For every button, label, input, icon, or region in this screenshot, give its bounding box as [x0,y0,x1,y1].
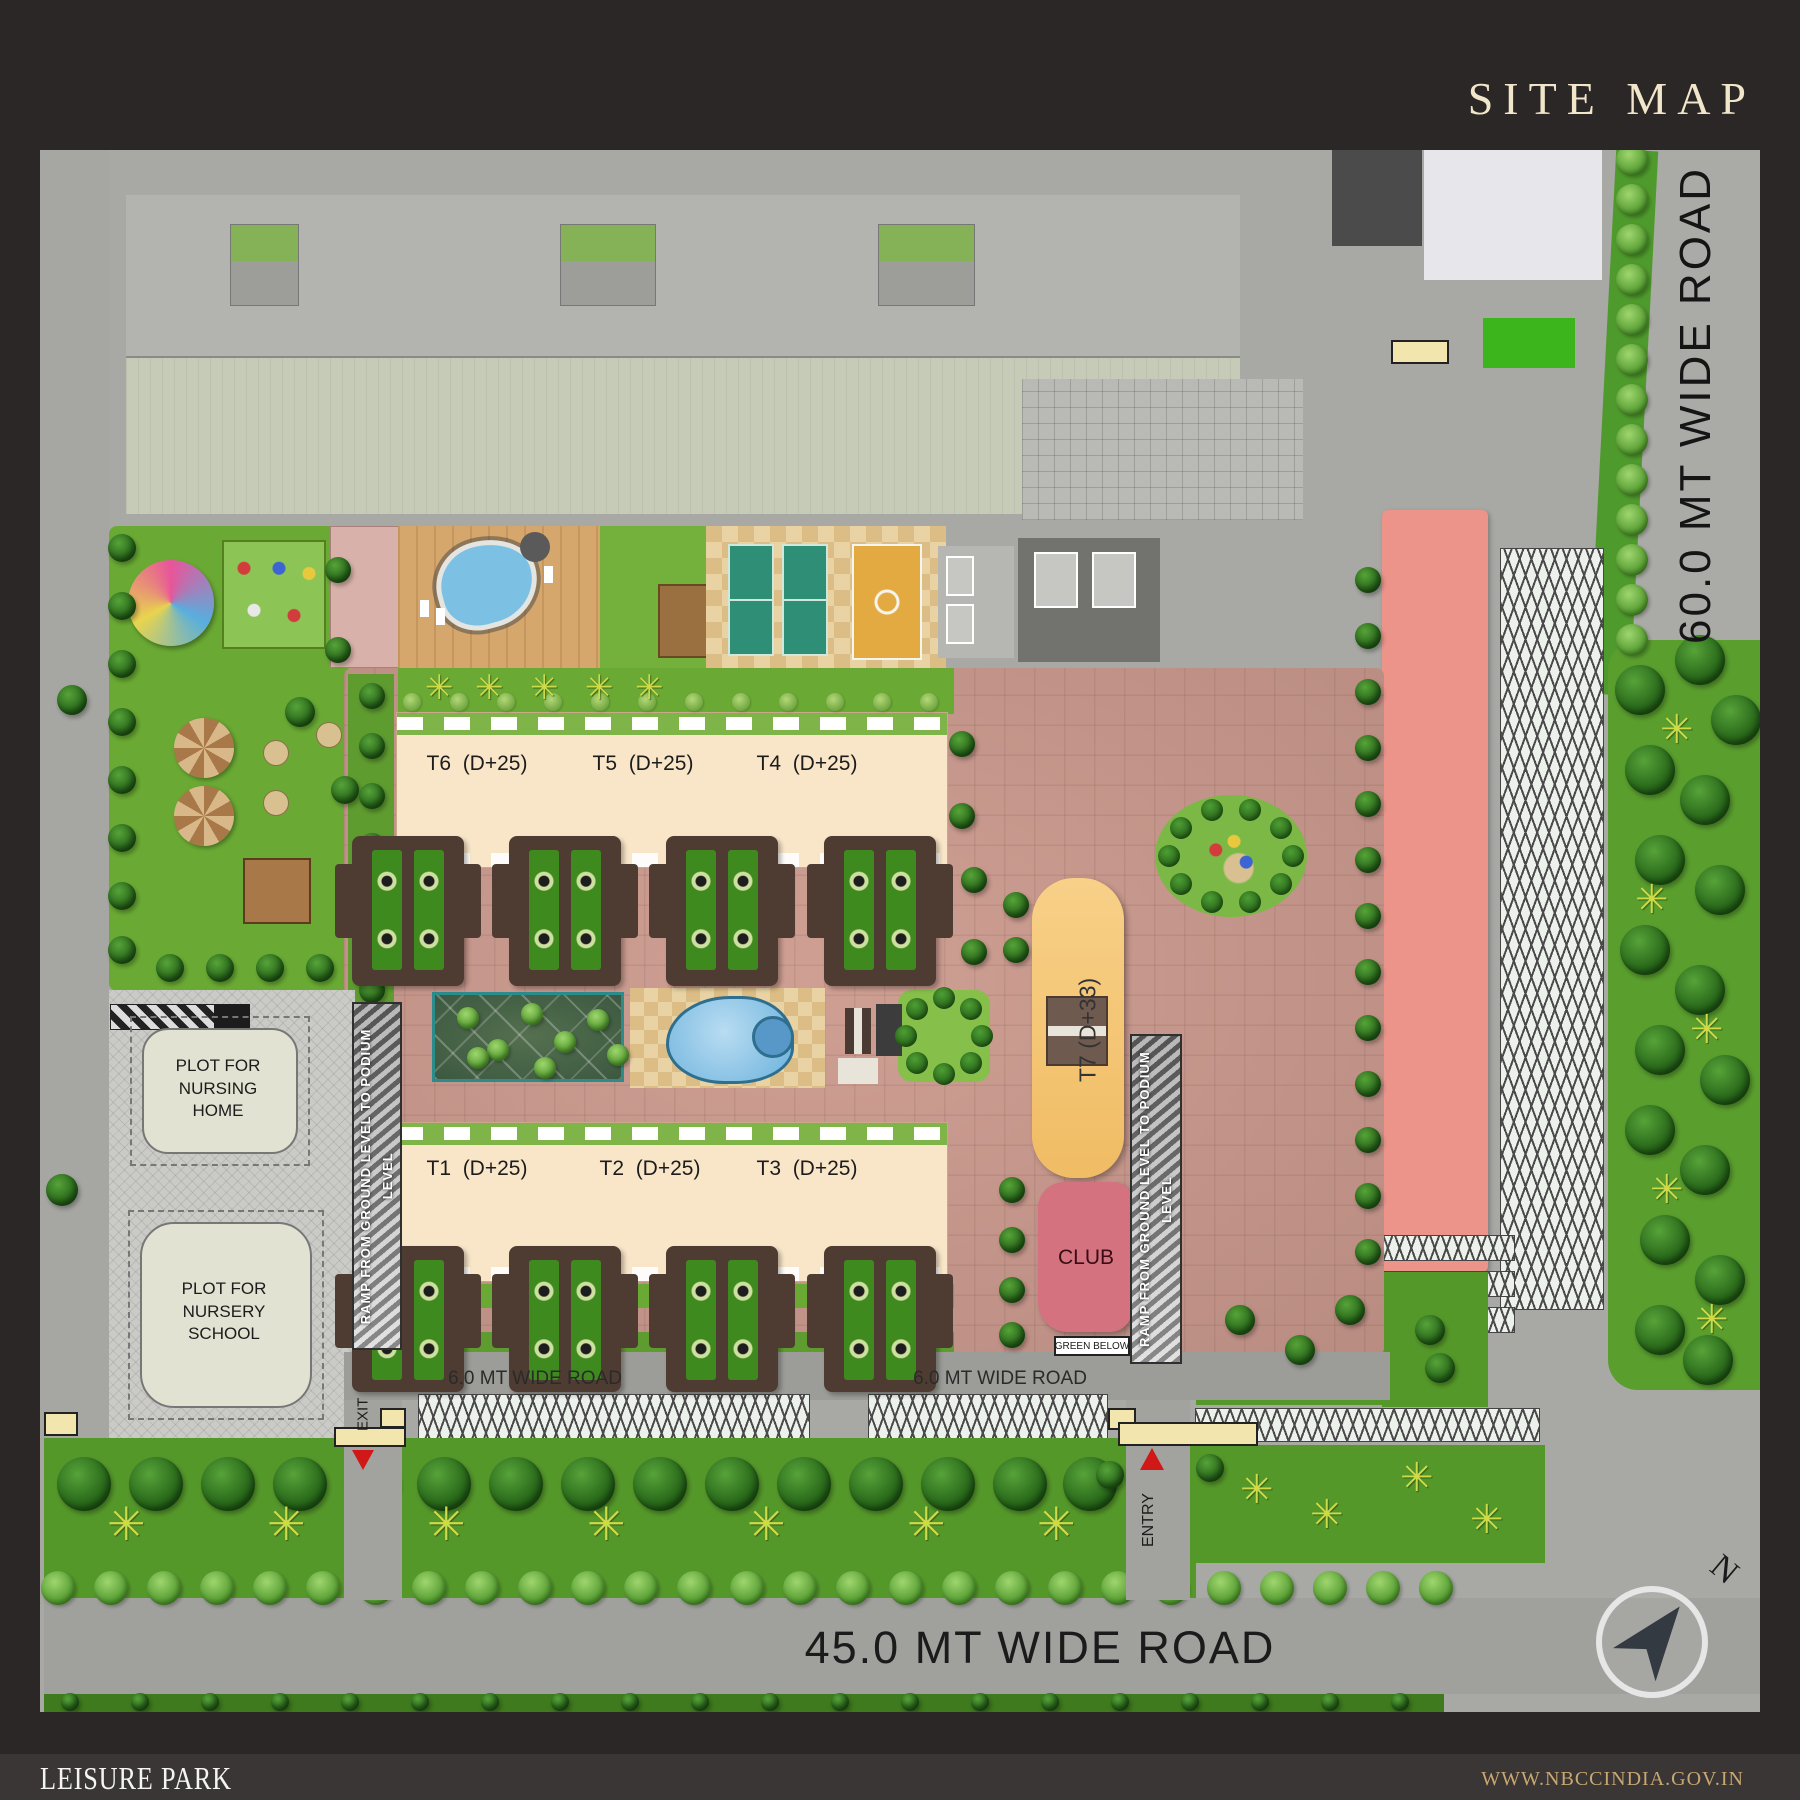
tree-icon [1616,624,1648,656]
tree-icon [1695,865,1745,915]
palm-icon: ✳ [1037,1501,1076,1547]
tree-icon [942,1571,976,1605]
tree-icon [1048,1571,1082,1605]
ramp-west: RAMP FROM GROUND LEVEL TO PODIUM LEVEL [352,1002,402,1350]
tree-icon [108,592,136,620]
page-title: SITE MAP [1468,72,1756,125]
palm-icon: ✳ [1310,1495,1344,1535]
tree-icon [960,1052,982,1074]
palm-icon: ✳ [907,1501,946,1547]
substation-block [1034,552,1078,608]
tree-icon [783,1571,817,1605]
tree-icon [1111,1693,1129,1711]
palm-icon: ✳ [747,1501,786,1547]
tree-icon [949,803,975,829]
tree-icon [285,697,315,727]
palm-icon: ✳ [425,671,454,705]
basketball-court [852,544,922,660]
north-gate-barrier [1391,340,1449,364]
exit-arrow-icon [352,1450,374,1470]
entry-arrow-icon [1140,1448,1164,1470]
palm-icon: ✳ [1635,880,1669,920]
tree-icon [1355,735,1381,761]
existing-building [230,224,299,306]
ramp-west-label: RAMP FROM GROUND LEVEL TO PODIUM LEVEL [355,1011,399,1341]
parking-shed [868,1394,1108,1440]
exit-gate-cabin [380,1408,406,1428]
tree-icon [412,1571,446,1605]
tree-icon [1711,695,1760,745]
table-icon [263,790,289,816]
tree-icon [633,1457,687,1511]
road-6mt-east-label: 6.0 MT WIDE ROAD [905,1368,1095,1390]
footer-project-name: LEISURE PARK [40,1760,232,1797]
tree-icon [46,1174,78,1206]
tree-icon [761,1693,779,1711]
tree-icon [1616,504,1648,536]
park-building [243,858,311,924]
tree-icon [1355,847,1381,873]
palm-icon: ✳ [1690,1010,1724,1050]
tree-icon [1355,791,1381,817]
lounger-icon [420,600,429,617]
tree-icon [1355,1071,1381,1097]
tree-icon [156,954,184,982]
tree-icon [457,1007,479,1029]
ramp-east-label: RAMP FROM GROUND LEVEL TO PODIUM LEVEL [1134,1043,1178,1356]
tree-icon [779,693,797,711]
tree-icon [999,1277,1025,1303]
exit-label: EXIT [348,1385,378,1443]
tree-icon [587,1009,609,1031]
tree-icon [1355,623,1381,649]
palm-icon: ✳ [107,1501,146,1547]
nursing-home-label: PLOT FOR NURSING HOME [158,1040,278,1138]
green-strip-bottom [44,1694,1444,1712]
tree-icon [403,693,421,711]
tree-icon [730,1571,764,1605]
club-label: CLUB [1040,1246,1132,1270]
tree-icon [999,1322,1025,1348]
tree-icon [1207,1571,1241,1605]
tree-icon [1616,184,1648,216]
tree-icon [1313,1571,1347,1605]
utility-block [946,556,974,596]
tree-icon [1616,224,1648,256]
pink-boundary-strip [1382,510,1488,1272]
tree-icon [1285,1335,1315,1365]
table-icon [316,722,342,748]
tree-icon [551,1693,569,1711]
tree-icon [1425,1353,1455,1383]
tree-icon [1158,845,1180,867]
palm-icon: ✳ [585,671,614,705]
tree-icon [518,1571,552,1605]
tree-icon [836,1571,870,1605]
tree-icon [1355,1183,1381,1209]
tree-icon [1170,817,1192,839]
tree-icon [621,1693,639,1711]
tree-icon [933,987,955,1009]
tree-icon [108,824,136,852]
tree-icon [554,1031,576,1053]
tree-icon [57,685,87,715]
tower-label-t7: T7 (D+33) [1062,900,1114,1160]
tree-icon [481,1693,499,1711]
tree-icon [325,557,351,583]
tree-icon [691,1693,709,1711]
tree-icon [1616,424,1648,456]
tree-icon [1355,1127,1381,1153]
tree-icon [1355,903,1381,929]
tree-icon [1251,1693,1269,1711]
tree-icon [147,1571,181,1605]
tree-icon [1366,1571,1400,1605]
tree-icon [489,1457,543,1511]
tree-icon [331,776,359,804]
tree-icon [200,1571,234,1605]
tree-icon [1680,775,1730,825]
tree-icon [1282,845,1304,867]
entry-gate-barrier [1118,1422,1258,1446]
tree-icon [873,693,891,711]
tree-icon [41,1571,75,1605]
tree-icon [1635,1025,1685,1075]
tree-icon [624,1571,658,1605]
palm-icon: ✳ [1650,1170,1684,1210]
palm-icon: ✳ [587,1501,626,1547]
tree-icon [1196,1454,1224,1482]
lounger-icon [436,608,445,625]
slab-roof-garden [397,1123,947,1145]
tower-label-t2: T2 (D+25) [575,1157,725,1181]
ramp-east: RAMP FROM GROUND LEVEL TO PODIUM LEVEL [1130,1034,1182,1364]
tree-icon [1355,1239,1381,1265]
light-structure [1424,150,1602,280]
covered-parking-strip [1500,548,1604,1310]
tree-icon [271,1693,289,1711]
deck-pad [838,1058,878,1084]
tree-icon [1355,959,1381,985]
tree-icon [1615,665,1665,715]
tree-icon [1616,344,1648,376]
tree-icon [1003,892,1029,918]
tree-icon [521,1003,543,1025]
tree-icon [995,1571,1029,1605]
tree-icon [906,1052,928,1074]
pergola [845,1008,871,1054]
tower-label-t3: T3 (D+25) [732,1157,882,1181]
parking-shed [418,1394,810,1440]
tree-icon [1635,1305,1685,1355]
tower-core [666,836,778,986]
nursery-school-label: PLOT FOR NURSERY SCHOOL [158,1252,290,1372]
tree-icon [999,1227,1025,1253]
tree-icon [1201,799,1223,821]
palm-icon: ✳ [267,1501,306,1547]
tree-icon [256,954,284,982]
tree-icon [1096,1461,1124,1489]
structure-grid [1022,379,1303,520]
tree-icon [1239,891,1261,913]
tree-icon [1625,745,1675,795]
tree-icon [999,1177,1025,1203]
tree-icon [1335,1295,1365,1325]
road-45mt-label: 45.0 MT WIDE ROAD [640,1622,1440,1674]
site-map-canvas: 60.0 MT WIDE ROAD T [40,150,1760,1712]
tree-icon [961,867,987,893]
tree-icon [1355,567,1381,593]
palm-icon: ✳ [475,671,504,705]
tree-icon [1640,1215,1690,1265]
road-6mt-west-label: 6.0 MT WIDE ROAD [440,1368,630,1390]
tree-icon [960,998,982,1020]
tower-label-t5: T5 (D+25) [568,752,718,776]
tennis-court [782,544,828,656]
spa-pool [752,1016,794,1058]
tree-icon [108,650,136,678]
tree-icon [1616,464,1648,496]
tree-icon [920,693,938,711]
tree-icon [677,1571,711,1605]
tree-icon [1616,584,1648,616]
tree-icon [1225,1305,1255,1335]
tree-icon [61,1693,79,1711]
tree-icon [1181,1693,1199,1711]
tower-core [666,1246,778,1392]
tree-icon [108,936,136,964]
playground [222,540,326,649]
tennis-court [728,544,774,656]
tree-icon [1419,1571,1453,1605]
tree-icon [306,954,334,982]
hut-icon [174,786,234,846]
entry-label: ENTRY [1134,1474,1164,1566]
tree-icon [1616,304,1648,336]
tree-icon [108,766,136,794]
tree-icon [849,1457,903,1511]
substation-block [1092,552,1136,608]
palm-icon: ✳ [635,671,664,705]
umbrella-icon [520,532,550,562]
road-west [40,150,109,1605]
tree-icon [1201,891,1223,913]
hut-icon [174,718,234,778]
dark-structure [1332,150,1422,246]
tree-icon [1355,1015,1381,1041]
tree-icon [94,1571,128,1605]
tree-icon [961,939,987,965]
tree-icon [1260,1571,1294,1605]
tree-icon [1170,873,1192,895]
tree-icon [1415,1315,1445,1345]
tree-icon [325,637,351,663]
tree-icon [933,1063,955,1085]
tree-icon [971,1693,989,1711]
tree-icon [971,1025,993,1047]
tree-icon [1683,1335,1733,1385]
tree-icon [1616,544,1648,576]
tree-icon [359,733,385,759]
tree-icon [826,693,844,711]
tree-icon [1616,384,1648,416]
tree-icon [359,783,385,809]
tower-label-t1: T1 (D+25) [402,1157,552,1181]
existing-building [560,224,656,306]
palm-icon: ✳ [1695,1300,1729,1340]
tree-icon [57,1457,111,1511]
tree-icon [253,1571,287,1605]
spiral-feature [128,560,214,646]
west-gate-barrier [44,1412,78,1436]
palm-icon: ✳ [427,1501,466,1547]
tower-label-t4: T4 (D+25) [732,752,882,776]
tower-core [824,836,936,986]
existing-building [878,224,975,306]
palm-icon: ✳ [1240,1470,1274,1510]
tree-icon [1625,1105,1675,1155]
tree-icon [1321,1693,1339,1711]
tree-icon [895,1025,917,1047]
green-patch-top [1483,318,1575,368]
tree-icon [201,1693,219,1711]
tree-icon [359,683,385,709]
tree-icon [1700,1055,1750,1105]
tree-icon [465,1571,499,1605]
tree-icon [108,534,136,562]
palm-icon: ✳ [1400,1458,1434,1498]
tree-icon [901,1693,919,1711]
slab-roof-garden [397,713,947,735]
tree-icon [341,1693,359,1711]
tree-icon [1041,1693,1059,1711]
tree-icon [831,1693,849,1711]
tree-icon [1616,264,1648,296]
tree-icon [732,693,750,711]
table-icon [263,740,289,766]
tree-icon [1355,679,1381,705]
tree-icon [108,708,136,736]
tree-icon [534,1057,556,1079]
tree-icon [487,1039,509,1061]
tree-icon [607,1044,629,1066]
tower-label-t6: T6 (D+25) [402,752,552,776]
tree-icon [1680,1145,1730,1195]
tree-icon [467,1047,489,1069]
north-label: N [1696,1542,1752,1598]
tree-icon [949,731,975,757]
palm-icon: ✳ [530,671,559,705]
road-60mt-label: 60.0 MT WIDE ROAD [1668,160,1724,650]
palm-icon: ✳ [1660,710,1694,750]
tree-icon [889,1571,923,1605]
tree-icon [206,954,234,982]
green-below-label: GREEN BELOW [1054,1336,1130,1356]
tree-icon [131,1693,149,1711]
palm-icon: ✳ [1470,1500,1504,1540]
lounger-icon [544,566,553,583]
tree-icon [685,693,703,711]
tree-icon [1391,1693,1409,1711]
tree-icon [1620,925,1670,975]
tree-icon [1270,817,1292,839]
utility-block [946,604,974,644]
tree-icon [1003,937,1029,963]
tower-core [352,836,464,986]
tree-icon [411,1693,429,1711]
tree-icon [571,1571,605,1605]
tree-icon [201,1457,255,1511]
tree-icon [108,882,136,910]
footer-website: WWW.NBCCINDIA.GOV.IN [1481,1768,1744,1791]
tree-icon [306,1571,340,1605]
tower-core [509,836,621,986]
